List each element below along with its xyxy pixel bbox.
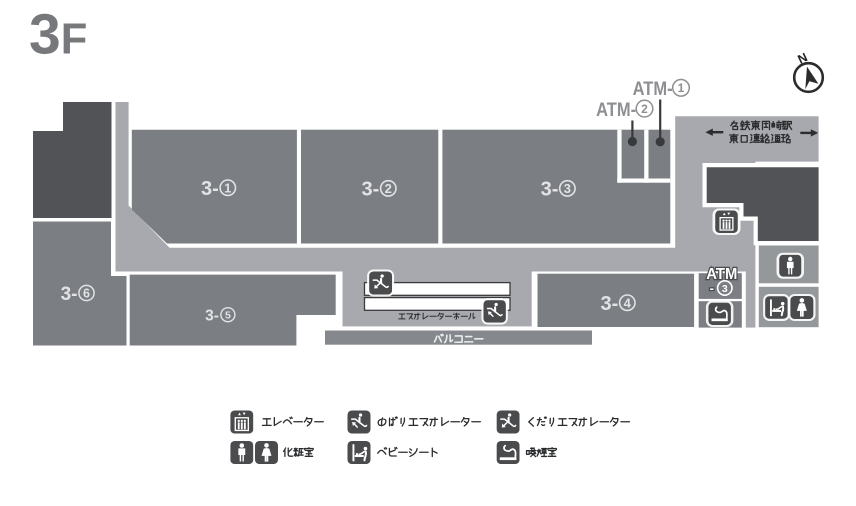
svg-text:2: 2: [641, 102, 648, 116]
svg-text:4: 4: [624, 295, 632, 310]
svg-text:3: 3: [564, 181, 571, 196]
svg-text:2: 2: [385, 181, 392, 196]
svg-text:5: 5: [225, 310, 231, 322]
svg-text:3-: 3-: [201, 178, 219, 200]
svg-text:3-: 3-: [601, 293, 619, 315]
svg-text:6: 6: [83, 287, 90, 301]
svg-text:ATM-: ATM-: [596, 100, 636, 121]
svg-text:ATM-: ATM-: [633, 79, 673, 100]
svg-text:3-: 3-: [362, 179, 380, 201]
svg-text:3-: 3-: [541, 179, 559, 201]
svg-text:3-: 3-: [61, 284, 78, 305]
svg-text:-: -: [710, 281, 714, 296]
svg-text:1: 1: [224, 180, 231, 195]
svg-text:3: 3: [722, 283, 728, 295]
svg-text:3-: 3-: [205, 307, 219, 324]
svg-text:1: 1: [678, 81, 685, 95]
